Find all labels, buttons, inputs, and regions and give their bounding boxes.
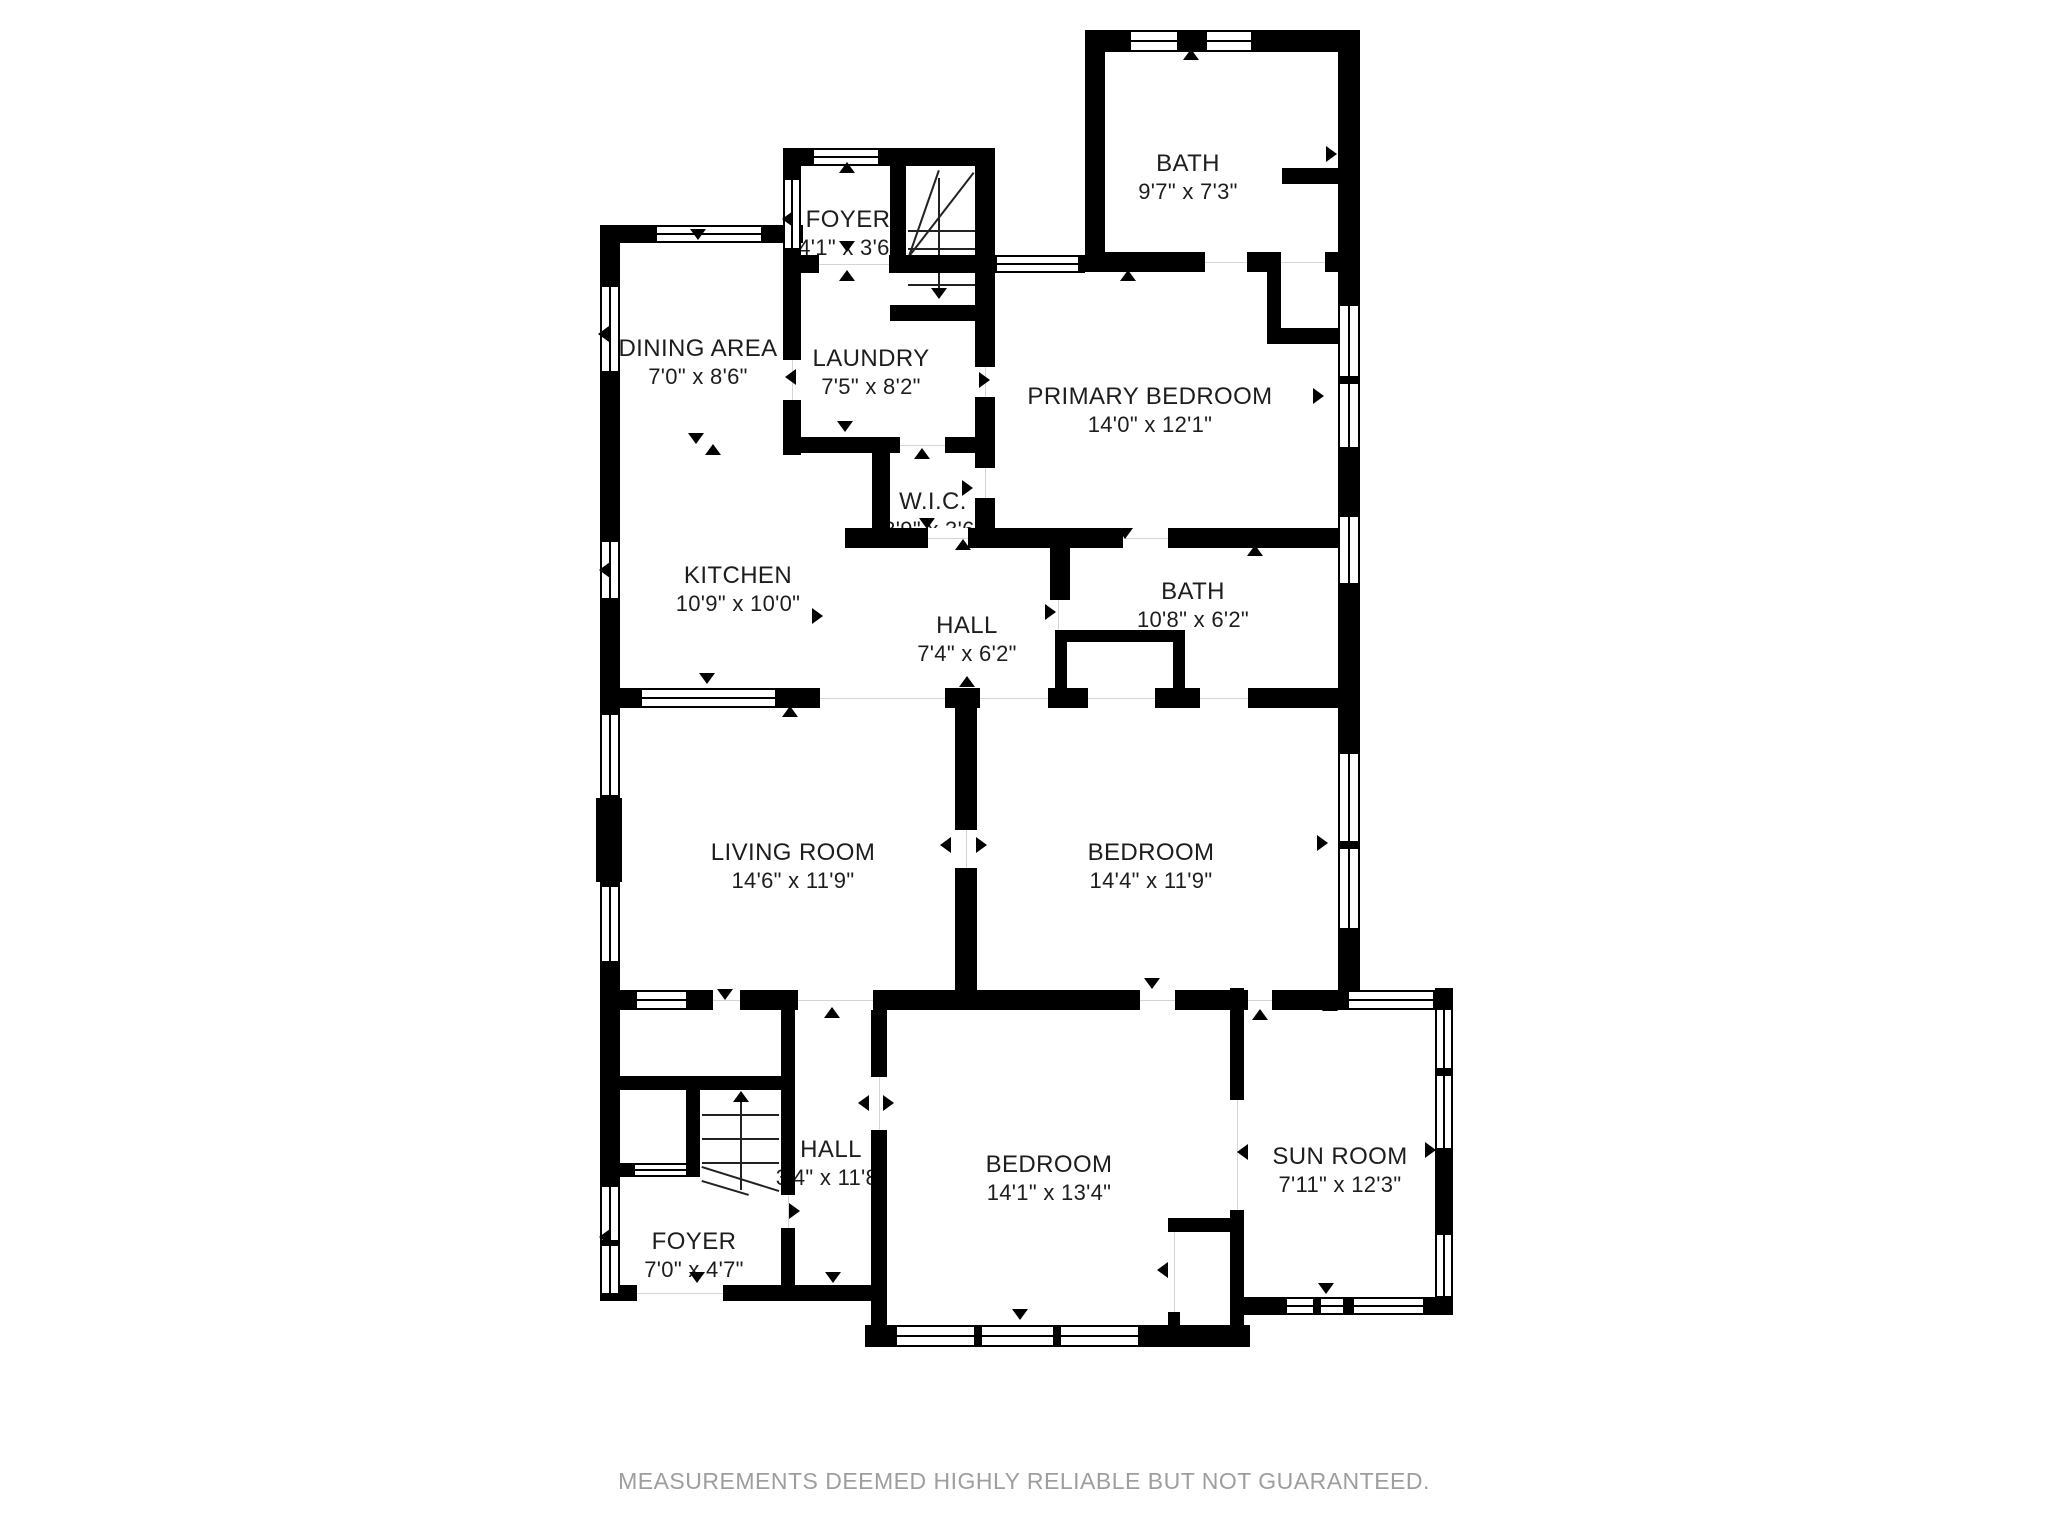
- door-direction-arrow-icon: [839, 270, 855, 281]
- wall-segment: [1168, 1312, 1180, 1327]
- window-icon: [1205, 30, 1253, 52]
- room-name: BATH: [1137, 578, 1249, 607]
- room-label-sun-room: SUN ROOM 7'11" x 12'3": [1272, 1143, 1407, 1198]
- room-name: LIVING ROOM: [711, 839, 875, 868]
- stair-direction-arrow-icon: [733, 1091, 749, 1102]
- door-direction-arrow-icon: [839, 162, 855, 173]
- door-direction-arrow-icon: [699, 673, 715, 684]
- door-direction-arrow-icon: [812, 608, 823, 624]
- door-opening: [1140, 990, 1175, 1010]
- room-label-laundry: LAUNDRY 7'5" x 8'2": [812, 345, 929, 400]
- room-dims: 10'9" x 10'0": [676, 591, 801, 617]
- door-direction-arrow-icon: [839, 241, 855, 252]
- stair-winder-line: [908, 170, 940, 257]
- window-icon: [640, 688, 777, 708]
- room-name: DINING AREA: [618, 335, 777, 364]
- floor-plan-canvas: FOYER 4'1" x 3'6" BATH 9'7" x 7'3" DININ…: [0, 0, 2048, 1536]
- room-label-dining-area: DINING AREA 7'0" x 8'6": [618, 335, 777, 390]
- window-icon: [1435, 1008, 1453, 1072]
- room-name: FOYER: [644, 1228, 744, 1257]
- stair-direction-arrow-icon: [931, 288, 947, 299]
- door-direction-arrow-icon: [782, 706, 798, 717]
- door-direction-arrow-icon: [600, 837, 611, 853]
- room-dims: 7'5" x 8'2": [812, 374, 929, 400]
- room-label-bedroom-lower: BEDROOM 14'1" x 13'4": [986, 1151, 1113, 1206]
- room-dims: 14'6" x 11'9": [711, 868, 875, 894]
- door-opening: [820, 688, 945, 708]
- door-opening: [975, 468, 995, 498]
- stair-arrow-line: [740, 1102, 742, 1190]
- door-direction-arrow-icon: [599, 562, 610, 578]
- door-direction-arrow-icon: [1085, 146, 1096, 162]
- wall-segment: [1055, 630, 1185, 642]
- stair-tread-line: [908, 284, 975, 286]
- door-direction-arrow-icon: [705, 444, 721, 455]
- room-label-kitchen: KITCHEN 10'9" x 10'0": [676, 562, 801, 617]
- window-icon: [600, 885, 620, 963]
- door-direction-arrow-icon: [1313, 388, 1324, 404]
- door-direction-arrow-icon: [1252, 1009, 1268, 1020]
- door-direction-arrow-icon: [824, 1007, 840, 1018]
- room-name: HALL: [917, 612, 1017, 641]
- room-name: BEDROOM: [986, 1151, 1113, 1180]
- door-opening: [1248, 990, 1272, 1010]
- stair-arrow-line: [938, 178, 940, 296]
- door-opening: [1088, 688, 1155, 708]
- window-mullion: [1313, 1297, 1321, 1315]
- window-icon: [1129, 30, 1179, 52]
- door-direction-arrow-icon: [1317, 835, 1328, 851]
- door-direction-arrow-icon: [1425, 1142, 1436, 1158]
- stair-winder-line: [908, 172, 974, 257]
- wall-segment: [1050, 548, 1070, 600]
- room-label-living-room: LIVING ROOM 14'6" x 11'9": [711, 839, 875, 894]
- room-name: KITCHEN: [676, 562, 801, 591]
- window-mullion: [974, 1325, 982, 1347]
- door-direction-arrow-icon: [837, 421, 853, 432]
- door-direction-arrow-icon: [1120, 270, 1136, 281]
- door-direction-arrow-icon: [919, 518, 935, 529]
- door-opening: [980, 688, 1048, 708]
- room-label-foyer-upper: FOYER 4'1" x 3'6": [798, 206, 898, 261]
- wall-segment: [890, 305, 995, 321]
- door-direction-arrow-icon: [1144, 978, 1160, 989]
- door-opening: [637, 1285, 723, 1301]
- door-direction-arrow-icon: [1117, 528, 1133, 539]
- door-direction-arrow-icon: [825, 1272, 841, 1283]
- door-direction-arrow-icon: [1247, 545, 1263, 556]
- room-dims: 14'4" x 11'9": [1088, 868, 1215, 894]
- window-icon: [1347, 990, 1435, 1010]
- door-direction-arrow-icon: [955, 539, 971, 550]
- window-icon: [995, 255, 1080, 273]
- door-direction-arrow-icon: [1157, 1262, 1168, 1278]
- door-direction-arrow-icon: [891, 211, 902, 227]
- room-label-bath-middle: BATH 10'8" x 6'2": [1137, 578, 1249, 633]
- wall-segment: [1282, 168, 1338, 184]
- room-dims: 14'0" x 12'1": [1027, 412, 1272, 438]
- room-name: BATH: [1138, 150, 1238, 179]
- window-icon: [1338, 304, 1360, 380]
- window-icon: [633, 1163, 688, 1177]
- window-icon: [1338, 515, 1360, 585]
- room-name: PRIMARY BEDROOM: [1027, 383, 1272, 412]
- door-direction-arrow-icon: [690, 229, 706, 240]
- room-dims: 14'1" x 13'4": [986, 1180, 1113, 1206]
- window-icon: [1435, 1233, 1453, 1298]
- door-direction-arrow-icon: [782, 211, 793, 227]
- room-name: FOYER: [798, 206, 898, 235]
- window-icon: [655, 225, 763, 243]
- door-opening: [1281, 252, 1325, 272]
- window-mullion: [1435, 1068, 1453, 1076]
- door-direction-arrow-icon: [1318, 1283, 1334, 1294]
- door-direction-arrow-icon: [688, 433, 704, 444]
- wall-segment: [845, 528, 1360, 548]
- window-mullion: [1338, 376, 1360, 384]
- window-icon: [895, 1325, 1140, 1347]
- door-direction-arrow-icon: [858, 1095, 869, 1111]
- door-opening: [1205, 252, 1247, 272]
- door-direction-arrow-icon: [1326, 146, 1337, 162]
- door-direction-arrow-icon: [959, 676, 975, 687]
- stair-tread-line: [908, 248, 975, 250]
- door-direction-arrow-icon: [1045, 604, 1056, 620]
- door-direction-arrow-icon: [979, 372, 990, 388]
- wall-segment: [871, 1010, 887, 1340]
- door-direction-arrow-icon: [1237, 1144, 1248, 1160]
- window-icon: [1338, 382, 1360, 449]
- door-opening: [1168, 1232, 1180, 1312]
- room-name: LAUNDRY: [812, 345, 929, 374]
- door-opening: [1200, 688, 1248, 708]
- door-direction-arrow-icon: [1322, 1000, 1338, 1011]
- room-dims: 9'7" x 7'3": [1138, 179, 1238, 205]
- window-mullion: [1053, 1325, 1061, 1347]
- room-label-hall-middle: HALL 7'4" x 6'2": [917, 612, 1017, 667]
- room-label-primary-bedroom: PRIMARY BEDROOM 14'0" x 12'1": [1027, 383, 1272, 438]
- room-dims: 7'11" x 12'3": [1272, 1172, 1407, 1198]
- door-direction-arrow-icon: [874, 480, 885, 496]
- wall-segment: [600, 1076, 785, 1090]
- door-direction-arrow-icon: [1012, 1309, 1028, 1320]
- window-icon: [1352, 1297, 1425, 1315]
- room-label-bedroom-middle: BEDROOM 14'4" x 11'9": [1088, 839, 1215, 894]
- window-icon: [600, 713, 620, 797]
- door-direction-arrow-icon: [598, 326, 609, 342]
- room-dims: 7'0" x 8'6": [618, 364, 777, 390]
- door-direction-arrow-icon: [914, 448, 930, 459]
- room-name: SUN ROOM: [1272, 1143, 1407, 1172]
- door-direction-arrow-icon: [599, 1229, 610, 1245]
- window-icon: [1435, 1072, 1453, 1150]
- window-icon: [635, 990, 688, 1010]
- door-direction-arrow-icon: [789, 1203, 800, 1219]
- room-name: BEDROOM: [1088, 839, 1215, 868]
- disclaimer-text: MEASUREMENTS DEEMED HIGHLY RELIABLE BUT …: [0, 1468, 2048, 1495]
- door-direction-arrow-icon: [1183, 49, 1199, 60]
- door-direction-arrow-icon: [940, 837, 951, 853]
- door-direction-arrow-icon: [689, 1272, 705, 1283]
- room-label-bath-upper: BATH 9'7" x 7'3": [1138, 150, 1238, 205]
- wall-segment: [723, 1285, 875, 1301]
- door-direction-arrow-icon: [785, 369, 796, 385]
- door-direction-arrow-icon: [976, 837, 987, 853]
- wall-segment: [781, 1010, 795, 1195]
- door-opening: [955, 830, 977, 868]
- door-direction-arrow-icon: [962, 480, 973, 496]
- window-mullion: [1338, 841, 1360, 849]
- door-direction-arrow-icon: [883, 1095, 894, 1111]
- room-dims: 7'4" x 6'2": [917, 641, 1017, 667]
- door-direction-arrow-icon: [717, 989, 733, 1000]
